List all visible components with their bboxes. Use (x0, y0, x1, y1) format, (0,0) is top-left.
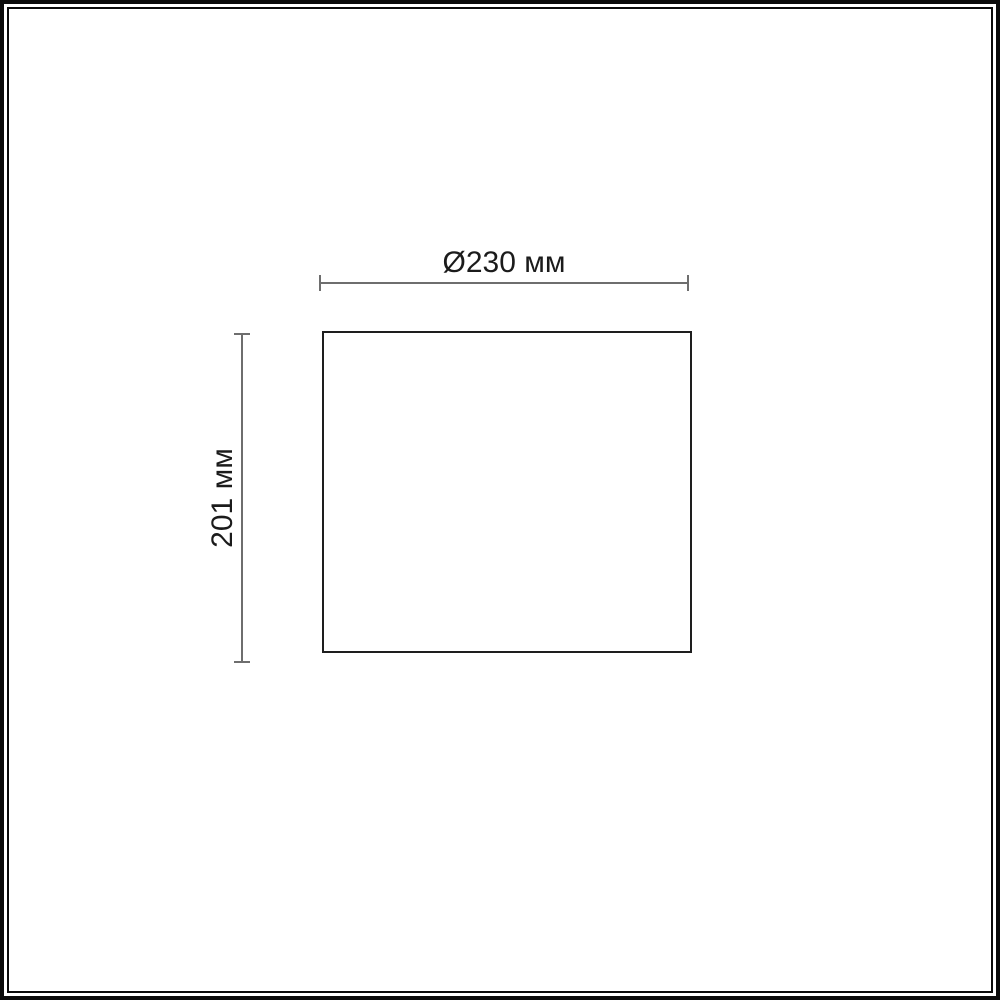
drawing-canvas: Ø230 мм 201 мм (0, 0, 1000, 1000)
height-dimension-tick-bottom (234, 661, 250, 663)
width-dimension-line (319, 282, 689, 284)
width-dimension-label: Ø230 мм (319, 247, 689, 279)
height-dimension-label: 201 мм (207, 448, 239, 548)
height-dimension-line (241, 333, 243, 663)
height-dimension-tick-top (234, 333, 250, 335)
product-outline-rectangle (322, 331, 692, 653)
